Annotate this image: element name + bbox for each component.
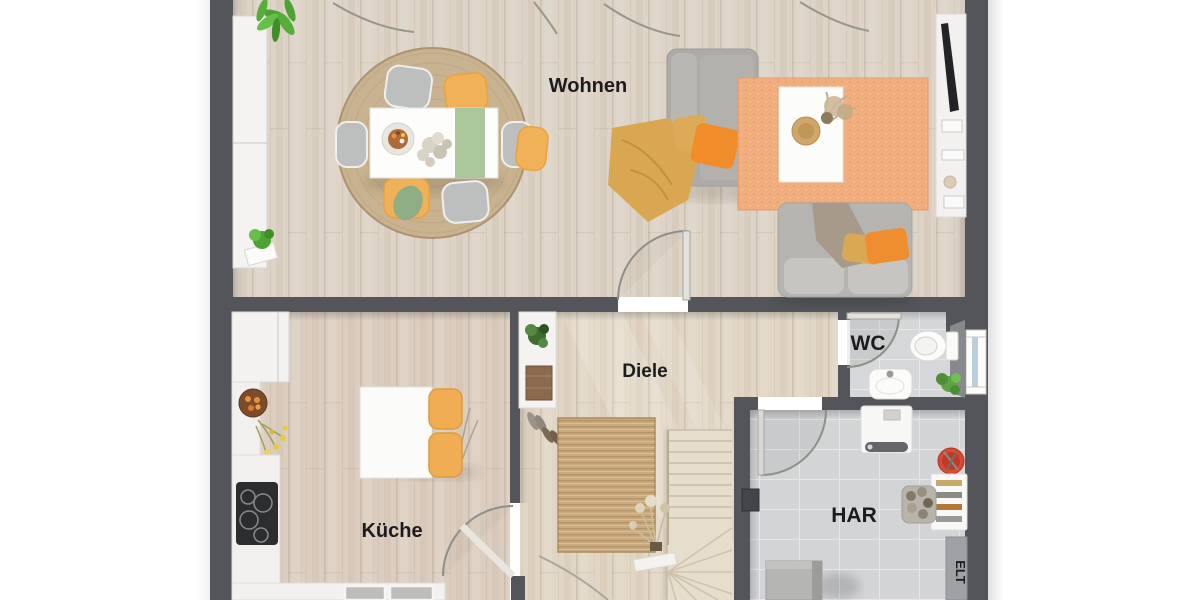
candle [944, 176, 956, 188]
wall-right [965, 0, 988, 600]
sideboard [233, 16, 267, 268]
pillow-orange [864, 227, 910, 265]
wc-sink [869, 369, 912, 399]
wall-cabinet [232, 312, 289, 382]
tv-board [936, 14, 966, 217]
window [966, 330, 986, 394]
kitchen-base-cabinets [232, 583, 445, 600]
elt-panel: ELT [946, 537, 968, 600]
table-runner [455, 108, 485, 178]
books-stack [526, 366, 552, 400]
dining-table [370, 108, 498, 178]
fruit-bowl [239, 389, 267, 417]
living-room-label: Wohnen [549, 75, 628, 97]
floorplan-svg: ELT Wohnen Küche Diele WC HAR [0, 0, 1200, 600]
laundry-basket [902, 486, 936, 523]
sofa [775, 203, 915, 307]
dining-chair-yellow [515, 126, 549, 172]
books [942, 120, 962, 132]
runner-rug [558, 418, 655, 552]
meter-box [742, 489, 759, 511]
wc-label: WC [851, 332, 886, 355]
toilet [910, 331, 958, 361]
wall-utility-top-left [750, 397, 758, 410]
cooktop [236, 482, 278, 545]
wall-living-south-left [233, 297, 618, 312]
dining-chair-gray [383, 64, 433, 111]
hallway-label: Diele [622, 361, 667, 382]
washing-machine [861, 406, 912, 453]
dining-chair-gray [336, 122, 367, 167]
wall-left [210, 0, 233, 600]
electrical-label: ELT [953, 560, 968, 584]
living-rug-area [738, 78, 928, 210]
wall-kitchen-stub [511, 576, 525, 600]
kitchen-label: Küche [361, 520, 422, 542]
wall-wc-stub-bottom [838, 365, 850, 397]
books [942, 150, 964, 160]
books [944, 196, 964, 208]
plant-pot [650, 542, 662, 551]
bar-chair-yellow [429, 433, 462, 477]
console-shelf [519, 312, 556, 408]
floorplan-image: ELT Wohnen Küche Diele WC HAR [0, 0, 1200, 600]
red-bucket [938, 448, 964, 474]
bar-chair-yellow [429, 389, 462, 429]
dining-chair-gray [441, 180, 489, 224]
dining-chair-yellow [443, 72, 489, 113]
utility-room-label: HAR [831, 504, 877, 527]
